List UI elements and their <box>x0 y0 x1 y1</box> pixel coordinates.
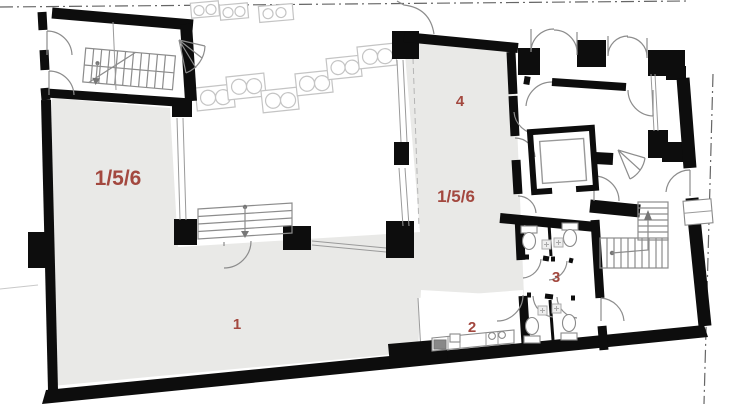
dishwasher-icon <box>434 340 446 349</box>
wall-a <box>524 80 626 87</box>
courtyard-tables <box>190 1 397 113</box>
room-label-2: 2 <box>468 319 476 336</box>
glass-partition <box>651 74 658 131</box>
wall-stair <box>590 206 640 211</box>
toilet-icon <box>524 318 540 344</box>
sink-icon <box>552 304 561 313</box>
winder-stair-right <box>618 150 645 179</box>
floor-plan-page: 1/5/6 1 4 1/5/6 2 3 <box>0 0 742 412</box>
pillar <box>172 100 192 117</box>
room-label-3: 3 <box>552 269 560 286</box>
burner-icon <box>499 332 506 339</box>
room-label-156-left: 1/5/6 <box>95 167 142 190</box>
elevator <box>530 128 596 192</box>
wall-hall-top <box>52 13 193 25</box>
bench <box>683 199 713 225</box>
sink-icon <box>538 306 547 315</box>
pillar <box>394 142 409 165</box>
pillar <box>386 221 414 258</box>
door-arc <box>47 31 72 55</box>
sink-icon <box>554 238 563 247</box>
toilet-icon <box>521 226 537 250</box>
sink-icon <box>542 240 551 249</box>
floor-plan-svg: 1/5/6 1 4 1/5/6 2 3 <box>0 0 742 412</box>
burner-icon <box>489 333 496 340</box>
pillar <box>577 40 606 67</box>
toilet-icon <box>561 315 577 341</box>
neighbor-line <box>0 285 38 289</box>
room-label-1: 1 <box>233 316 241 333</box>
kitchen-sink-icon <box>450 334 460 342</box>
door-arc-right-wall <box>666 170 690 196</box>
boundary-line-top <box>0 1 690 7</box>
room-label-156-right: 1/5/6 <box>437 187 475 206</box>
wall-stub <box>595 158 613 159</box>
wc-fixtures <box>521 223 578 343</box>
gate-swing-arc <box>397 1 434 34</box>
wall-hall-right <box>186 24 191 101</box>
pillar <box>518 48 540 75</box>
wall-pilaster-left <box>28 232 52 268</box>
boundary-line-right <box>704 74 713 404</box>
wall-left-upper <box>42 12 46 100</box>
toilet-icon <box>562 223 578 247</box>
wc-stall-fronts <box>525 257 575 298</box>
pillar-step <box>666 66 686 80</box>
pillar <box>174 219 197 245</box>
room-label-4: 4 <box>456 93 465 110</box>
pillar <box>283 226 311 250</box>
